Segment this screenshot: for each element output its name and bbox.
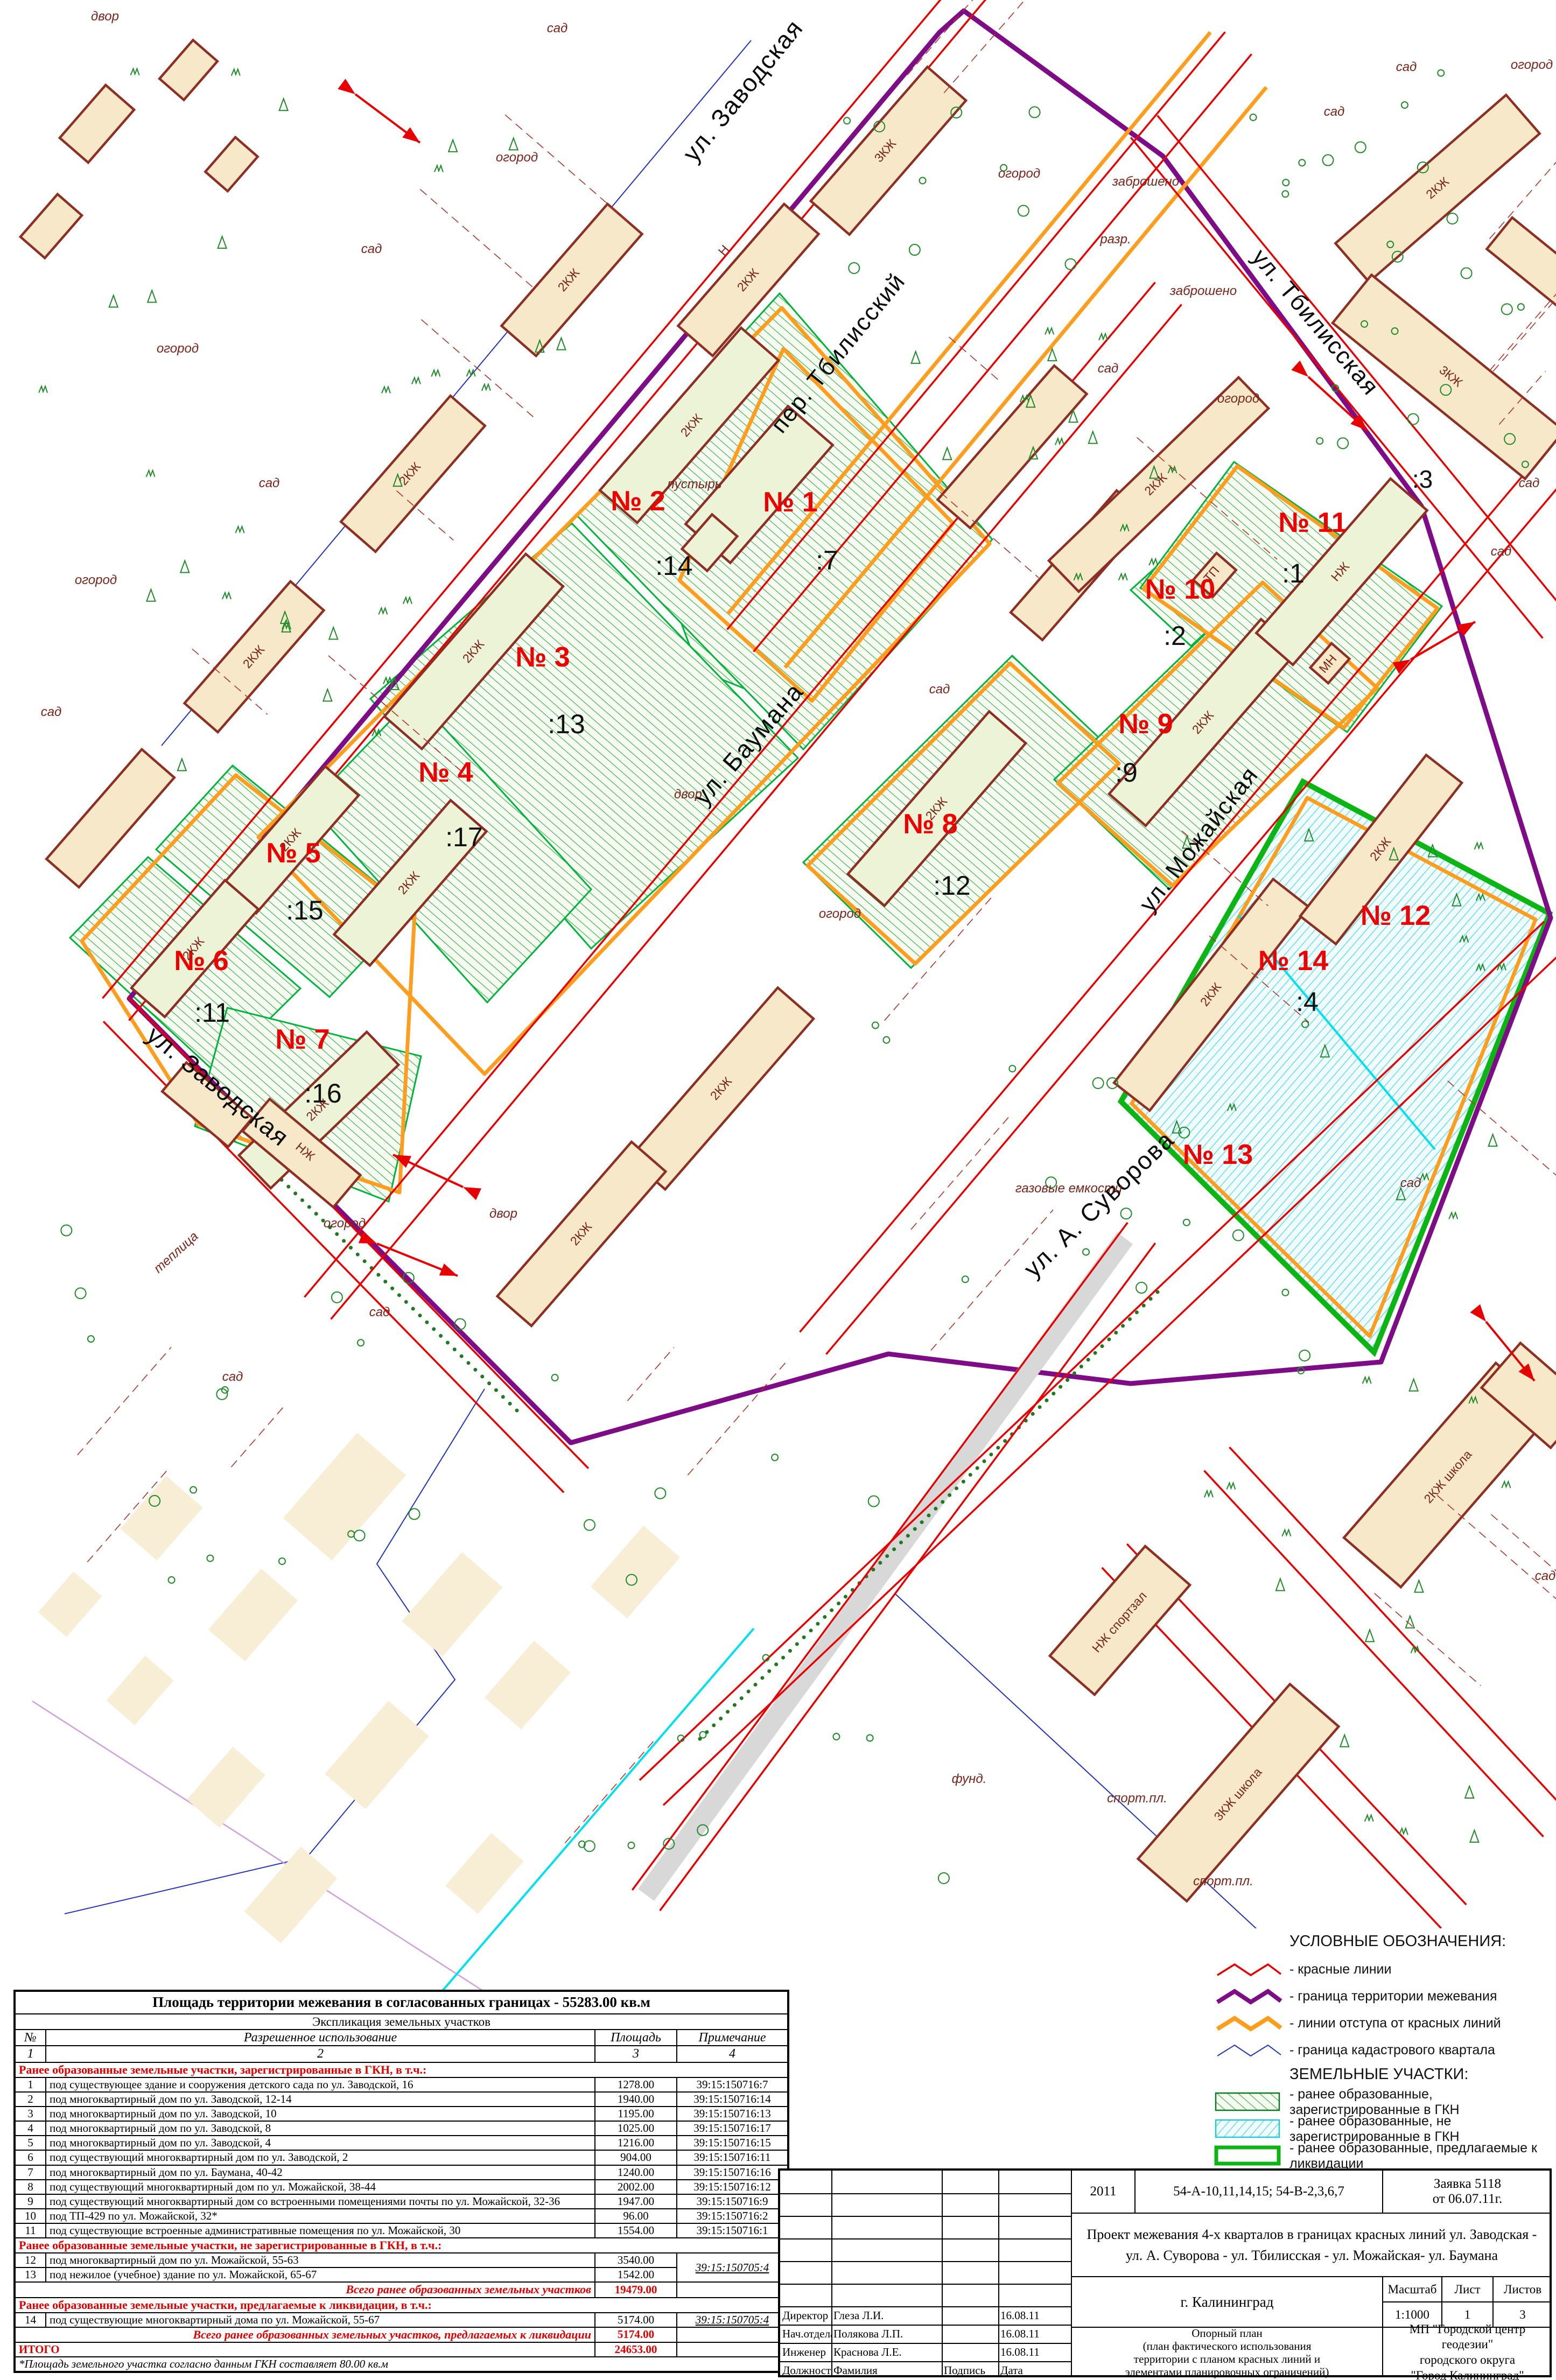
row-area: 1542.00 <box>595 2267 677 2282</box>
tree-symbol <box>909 244 920 255</box>
stamp-sheet-label: Лист <box>1441 2276 1492 2301</box>
parcel-cadastral-number: :12 <box>933 870 971 901</box>
stamp-year: 2011 <box>1071 2171 1134 2213</box>
area-label: сад <box>1098 361 1119 376</box>
table-row: 12под многоквартирный дом по ул. Можайск… <box>15 2253 788 2267</box>
tree-symbol <box>584 1520 595 1530</box>
roadway-band <box>638 1232 1133 1901</box>
explication-table: Площадь территории межевания в согласова… <box>13 1990 789 2373</box>
tree-symbol <box>1322 155 1333 166</box>
tree-symbol <box>584 1841 595 1851</box>
building-label: Н <box>716 242 732 258</box>
row-area: 1025.00 <box>595 2121 677 2136</box>
bush-symbol <box>1401 102 1408 108</box>
legend-line-symbol <box>1209 1986 1289 2006</box>
table-row: 3под многоквартирный дом по ул. Заводско… <box>15 2107 788 2121</box>
conifer-symbol <box>329 627 338 639</box>
table-footnote: *Площадь земельного участка согласно дан… <box>15 2357 788 2372</box>
bush-symbol <box>1299 159 1305 166</box>
conifer-symbol <box>1089 432 1097 444</box>
row-number: 11 <box>15 2223 46 2238</box>
row-note: 39:15:150716:7 <box>677 2077 788 2092</box>
table-row: Ранее образованные земельные участки, не… <box>15 2238 788 2253</box>
row-usage: под существующий многоквартирный дом со … <box>46 2194 595 2209</box>
row-number: 5 <box>15 2136 46 2150</box>
row-note: 39:15:150716:9 <box>677 2194 788 2209</box>
row-usage: под ТП-429 по ул. Можайской, 32* <box>46 2209 595 2223</box>
grand-total-area: 24653.00 <box>595 2342 677 2357</box>
cadastral-plan-sheet: № 1:7№ 2:14№ 3:13№ 4:17№ 5:15№ 6:11№ 7:1… <box>0 0 1556 2380</box>
staff-cell: 16.08.11 <box>998 2326 1071 2343</box>
area-label: сад <box>1535 1569 1556 1583</box>
row-usage: под многоквартирный дом по ул. Заводской… <box>46 2107 595 2121</box>
parcel-cadastral-number: :2 <box>1164 621 1186 651</box>
row-usage: под существующий многоквартирный дом по … <box>46 2180 595 2194</box>
row-area: 1195.00 <box>595 2107 677 2121</box>
cadastral-quarter-number: :3 <box>1412 465 1433 493</box>
row-number: 7 <box>15 2165 46 2180</box>
bush-symbol <box>1438 70 1444 76</box>
bush-symbol <box>920 177 926 184</box>
tree-symbol <box>61 1225 72 1236</box>
parcel-cadastral-number: :1 <box>1282 558 1305 588</box>
tree-symbol <box>1447 213 1458 224</box>
bush-symbol <box>628 1842 635 1849</box>
conifer-symbol <box>557 338 565 350</box>
tree-symbol <box>1233 1230 1244 1241</box>
staff-cell: Нач.отдела <box>780 2326 831 2343</box>
conifer-symbol <box>1489 1134 1497 1146</box>
staff-cell: Краснова Л.Е. <box>831 2344 942 2361</box>
empty-cell <box>677 2342 788 2357</box>
fence-line <box>565 1742 653 1843</box>
table-col-header: Примечание <box>677 2030 788 2046</box>
table-row: ИТОГО24653.00 <box>15 2342 788 2357</box>
area-label: теплица <box>151 1229 201 1276</box>
legend-item: - граница кадастрового квартала <box>1209 2037 1556 2063</box>
parcel-cadastral-number: :13 <box>548 709 585 739</box>
staff-cell: Дата <box>998 2362 1071 2379</box>
area-label: пустырь <box>668 477 722 492</box>
building-faded <box>325 1701 429 1809</box>
row-note: 39:15:150716:13 <box>677 2107 788 2121</box>
staff-row: ИнженерКраснова Л.Е.16.08.11 <box>780 2343 1071 2361</box>
conifer-symbol <box>218 236 227 248</box>
area-label: двор <box>91 9 119 24</box>
grass-symbol <box>232 69 240 75</box>
legend-item: - линии отступа от красных линий <box>1209 2010 1556 2037</box>
parcel-number: № 1 <box>763 487 817 518</box>
parcel-number: № 3 <box>515 642 570 673</box>
table-row: 6под существующий многоквартирный дом по… <box>15 2150 788 2165</box>
stamp-city: г. Калининград <box>1071 2276 1382 2327</box>
tree-symbol <box>1502 304 1512 314</box>
legend-item: - граница территории межевания <box>1209 1983 1556 2010</box>
row-number: 10 <box>15 2209 46 2223</box>
area-label: огород <box>496 150 538 165</box>
area-label: огород <box>1511 58 1553 72</box>
staff-cell: 16.08.11 <box>998 2307 1071 2325</box>
bush-symbol <box>1250 114 1257 121</box>
parcel-cadastral-number: :15 <box>286 895 324 925</box>
table-row: 1под существующее здание и сооружения де… <box>15 2077 788 2092</box>
area-label: заброшено <box>1112 174 1179 189</box>
grass-symbol <box>146 471 155 477</box>
conifer-symbol <box>323 689 332 701</box>
legend-item: - ранее образованные, зарегистрированные… <box>1209 2089 1556 2116</box>
bush-symbol <box>1183 1219 1190 1226</box>
tree-symbol <box>1018 206 1029 216</box>
grass-symbol <box>1502 1482 1510 1488</box>
tree-symbol <box>1408 413 1419 424</box>
bush-symbol <box>772 1454 778 1461</box>
table-row: 5под многоквартирный дом по ул. Заводско… <box>15 2136 788 2150</box>
fence-line <box>232 1406 285 1467</box>
parcel-number: № 13 <box>1183 1139 1253 1170</box>
bush-symbol <box>844 117 850 124</box>
area-label: огород <box>157 341 199 356</box>
building <box>1487 217 1556 310</box>
building-faded <box>485 1641 571 1730</box>
area-label: сад <box>41 705 62 719</box>
stamp-project-title: Проект межевания 4-х кварталов в граница… <box>1071 2213 1552 2276</box>
row-area: 5174.00 <box>595 2313 677 2327</box>
grand-total-label: ИТОГО <box>15 2342 595 2357</box>
bush-symbol <box>700 1732 706 1738</box>
stamp-codes: 54-А-10,11,14,15; 54-В-2,3,6,7 <box>1134 2171 1382 2213</box>
staff-row: ДолжностьФамилияПодписьДата <box>780 2361 1071 2379</box>
table-col-number: 4 <box>677 2046 788 2062</box>
legend-item-label: - ранее образованные, предлагаемые к лик… <box>1289 2140 1556 2172</box>
bush-symbol <box>1316 438 1323 444</box>
tree-symbol <box>1029 107 1040 117</box>
table-col-header: Разрешенное использование <box>46 2030 595 2046</box>
staff-cell: Полякова Л.П. <box>831 2326 942 2343</box>
row-area: 96.00 <box>595 2209 677 2223</box>
row-usage: под многоквартирный дом по ул. Заводской… <box>46 2136 595 2150</box>
parcel-number: № 12 <box>1361 900 1431 931</box>
bush-symbol <box>962 1276 969 1282</box>
fence-line <box>907 0 1006 75</box>
fence-line <box>505 115 630 223</box>
grass-symbol <box>235 526 244 533</box>
row-usage: под многоквартирный дом по ул. Заводской… <box>46 2092 595 2107</box>
tree-symbol <box>1461 268 1472 279</box>
row-usage: под многоквартирный дом по ул. Можайской… <box>46 2253 595 2267</box>
conifer-symbol <box>943 448 951 460</box>
tree-symbol <box>655 1488 665 1499</box>
staff-cell: Подпись <box>942 2362 998 2379</box>
area-label: газовые емкости <box>1015 1181 1122 1196</box>
grass-symbol <box>467 370 475 376</box>
bush-symbol <box>1518 304 1524 310</box>
row-number: 2 <box>15 2092 46 2107</box>
fence-line <box>949 337 998 380</box>
area-label: огород <box>998 166 1040 181</box>
site-plan-map: № 1:7№ 2:14№ 3:13№ 4:17№ 5:15№ 6:11№ 7:1… <box>0 0 1556 1992</box>
table-row: 14под существующие многоквартирный дома … <box>15 2313 788 2327</box>
grass-symbol <box>39 387 47 393</box>
conifer-symbol <box>1410 1379 1418 1391</box>
legend-title: УСЛОВНЫЕ ОБОЗНАЧЕНИЯ: <box>1289 1933 1556 1950</box>
row-note: 39:15:150716:12 <box>677 2180 788 2194</box>
row-area: 1240.00 <box>595 2165 677 2180</box>
table-row: 8под существующий многоквартирный дом по… <box>15 2180 788 2194</box>
legend-patch-symbol <box>1209 2118 1289 2140</box>
area-label: сад <box>547 21 568 36</box>
area-label: огород <box>819 907 861 921</box>
row-note: 39:15:150716:14 <box>677 2092 788 2107</box>
row-note: 39:15:150705:4 <box>677 2313 788 2327</box>
empty-cell <box>677 2282 788 2297</box>
tree-symbol <box>455 1319 466 1330</box>
bush-symbol <box>1083 1249 1089 1255</box>
total-label: Всего ранее образованных земельных участ… <box>15 2282 595 2297</box>
bush-symbol <box>88 1336 94 1342</box>
conifer-symbol <box>1465 1786 1474 1798</box>
tree-symbol <box>1121 1208 1132 1219</box>
area-label: сад <box>929 682 950 697</box>
building <box>938 366 1087 528</box>
table-col-number: 3 <box>595 2046 677 2062</box>
legend-line-symbol <box>1209 1959 1289 1979</box>
staff-row: ДиректорГлеза Л.И.16.08.11 <box>780 2306 1071 2325</box>
conifer-symbol <box>178 759 186 770</box>
bush-symbol <box>867 1735 873 1741</box>
table-subtitle: Экспликация земельных участков <box>15 2014 788 2030</box>
grass-symbol <box>222 593 231 599</box>
staff-cell <box>942 2307 998 2325</box>
row-number: 14 <box>15 2313 46 2327</box>
parcel-number: № 2 <box>611 486 665 517</box>
stamp-request: Заявка 5118 от 06.07.11г. <box>1382 2171 1552 2213</box>
area-label: сад <box>222 1370 243 1384</box>
conifer-symbol <box>448 140 457 152</box>
red-line-arrow <box>355 94 420 143</box>
staff-cell <box>942 2326 998 2343</box>
staff-cell <box>942 2344 998 2361</box>
row-note: 39:15:150716:2 <box>677 2209 788 2223</box>
grass-symbol <box>431 370 440 376</box>
legend-item-label: - красные линии <box>1289 1962 1391 1977</box>
legend-line-symbol <box>1209 2040 1289 2060</box>
row-area: 1940.00 <box>595 2092 677 2107</box>
parcel-number: № 9 <box>1118 708 1173 740</box>
table-row: 2под многоквартирный дом по ул. Заводско… <box>15 2092 788 2107</box>
conifer-symbol <box>279 99 288 110</box>
table-title: Площадь территории межевания в согласова… <box>15 1991 788 2014</box>
bush-symbol <box>1282 1289 1288 1296</box>
legend-item-label: - граница кадастрового квартала <box>1289 2042 1495 2058</box>
building <box>205 137 257 191</box>
bush-symbol <box>1282 191 1288 197</box>
row-usage: под существующее здание и сооружения дет… <box>46 2077 595 2092</box>
stamp-plan-name: Опорный план (план фактического использо… <box>1071 2327 1382 2377</box>
area-label: двор <box>489 1206 517 1221</box>
building-faded <box>591 1526 680 1618</box>
staff-cell: Фамилия <box>831 2362 942 2379</box>
grass-symbol <box>1363 1377 1371 1384</box>
area-label: сад <box>1400 1176 1421 1190</box>
row-number: 4 <box>15 2121 46 2136</box>
row-note: 39:15:150716:17 <box>677 2121 788 2136</box>
row-number: 9 <box>15 2194 46 2209</box>
row-area: 1554.00 <box>595 2223 677 2238</box>
building-faded <box>402 1552 502 1656</box>
area-label: спорт.пл. <box>1107 1791 1167 1806</box>
staff-row: Нач.отделаПолякова Л.П.16.08.11 <box>780 2325 1071 2343</box>
legend: УСЛОВНЫЕ ОБОЗНАЧЕНИЯ: - красные линии- г… <box>1209 1928 1556 2174</box>
bush-symbol <box>190 1487 197 1493</box>
bush-symbol <box>872 1022 879 1029</box>
tree-symbol <box>938 1873 949 1884</box>
grass-symbol <box>482 384 490 391</box>
row-number: 12 <box>15 2253 46 2267</box>
parcel-number: № 7 <box>275 1024 330 1055</box>
legend-patch-symbol <box>1209 2091 1289 2113</box>
legend-patch-symbol <box>1209 2145 1289 2167</box>
table-row: 4под многоквартирный дом по ул. Заводско… <box>15 2121 788 2136</box>
area-label: сад <box>361 242 382 256</box>
legend-item: - ранее образованные, не зарегистрирован… <box>1209 2116 1556 2143</box>
area-label: огород <box>75 573 117 587</box>
fence-line <box>911 1114 1011 1230</box>
table-col-number: 2 <box>46 2046 595 2062</box>
grass-symbol <box>1055 439 1064 445</box>
tree-symbol <box>75 1288 86 1298</box>
building-faded <box>244 1847 338 1943</box>
parcel-cadastral-number: :11 <box>194 998 230 1028</box>
tree-symbol <box>354 1530 365 1541</box>
parcel-cadastral-number: :9 <box>1115 757 1138 788</box>
grass-symbol <box>403 598 412 604</box>
conifer-symbol <box>148 290 156 302</box>
row-usage: под существующие встроенные администрати… <box>46 2223 595 2238</box>
table-row: 7под многоквартирный дом по ул. Баумана,… <box>15 2165 788 2180</box>
row-note: 39:15:150716:11 <box>677 2150 788 2165</box>
staff-cell: Инженер <box>780 2344 831 2361</box>
tree-symbol <box>1299 1350 1310 1361</box>
empty-cell <box>677 2327 788 2342</box>
conifer-symbol <box>180 561 189 573</box>
area-label: сад <box>1396 60 1417 74</box>
conifer-symbol <box>1276 1579 1285 1591</box>
total-area: 5174.00 <box>595 2327 677 2342</box>
building-faded <box>208 1569 298 1661</box>
row-note: 39:15:150716:1 <box>677 2223 788 2238</box>
red-line <box>632 1223 1127 1890</box>
section-row: Ранее образованные земельные участки, за… <box>15 2062 788 2077</box>
building-faded <box>187 1747 265 1828</box>
table-row: 10под ТП-429 по ул. Можайской, 32*96.003… <box>15 2209 788 2223</box>
parcel-cadastral-number: :14 <box>655 551 693 581</box>
row-usage: под существующие многоквартирный дома по… <box>46 2313 595 2327</box>
conifer-symbol <box>1414 1581 1423 1592</box>
table-row: 13под нежилое (учебное) здание по ул. Мо… <box>15 2267 788 2282</box>
bush-symbol <box>207 1555 213 1562</box>
tree-symbol <box>849 263 859 273</box>
row-area: 904.00 <box>595 2150 677 2165</box>
tree-symbol <box>1355 142 1366 153</box>
title-block: ДиректорГлеза Л.И.16.08.11Нач.отделаПоля… <box>778 2168 1552 2377</box>
staff-cell: Глеза Л.И. <box>831 2307 942 2325</box>
conifer-symbol <box>1470 1830 1478 1842</box>
grass-symbol <box>382 387 390 393</box>
bush-symbol <box>1009 1065 1015 1072</box>
staff-cell: Должность <box>780 2362 831 2379</box>
building-faded <box>445 1833 524 1914</box>
parcel-number: № 4 <box>418 757 473 788</box>
area-label: спорт.пл. <box>1193 1874 1253 1888</box>
grass-symbol <box>434 166 443 172</box>
conifer-symbol <box>1365 1630 1374 1641</box>
row-area: 1216.00 <box>595 2136 677 2150</box>
row-area: 3540.00 <box>595 2253 677 2267</box>
grass-symbol <box>1045 328 1054 334</box>
area-label: двор <box>674 787 702 802</box>
parcel-number: № 11 <box>1278 507 1347 538</box>
row-area: 2002.00 <box>595 2180 677 2194</box>
area-label: сад <box>1519 476 1540 490</box>
row-usage: под нежилое (учебное) здание по ул. Можа… <box>46 2267 595 2282</box>
stamp-scale-label: Масштаб <box>1382 2276 1441 2301</box>
row-number: 6 <box>15 2150 46 2165</box>
grass-symbol <box>1449 1212 1457 1219</box>
total-area: 19479.00 <box>595 2282 677 2297</box>
area-label: сад <box>1324 104 1345 119</box>
building-faded <box>38 1571 102 1637</box>
row-note: 39:15:150705:4 <box>677 2253 788 2282</box>
row-area: 1947.00 <box>595 2194 677 2209</box>
row-number: 1 <box>15 2077 46 2092</box>
staff-cell: Директор <box>780 2307 831 2325</box>
fence-line <box>688 1359 789 1475</box>
area-label: сад <box>1491 544 1512 559</box>
street-label: ул. Заводская <box>677 14 808 167</box>
parcel-number: № 14 <box>1258 945 1328 977</box>
grass-symbol <box>131 69 139 75</box>
conifer-symbol <box>109 296 118 307</box>
building <box>60 85 134 163</box>
table-row: 9под существующий многоквартирный дом со… <box>15 2194 788 2209</box>
row-usage: под многоквартирный дом по ул. Баумана, … <box>46 2165 595 2180</box>
stamp-organization: МП "Городской центр геодезии" городского… <box>1382 2327 1552 2377</box>
legend-item: - красные линии <box>1209 1956 1556 1983</box>
fence-line <box>78 1347 171 1455</box>
conifer-symbol <box>912 352 920 363</box>
table-col-number: 1 <box>15 2046 46 2062</box>
bush-symbol <box>169 1577 175 1583</box>
row-number: 13 <box>15 2267 46 2282</box>
grass-symbol <box>1282 1530 1291 1536</box>
grass-symbol <box>1119 574 1127 580</box>
table-row: Ранее образованные земельные участки, за… <box>15 2062 788 2077</box>
red-line-arrow <box>393 1155 463 1187</box>
conifer-symbol <box>1340 1735 1349 1747</box>
area-label: сад <box>369 1305 390 1319</box>
tree-symbol <box>1065 259 1076 270</box>
table-col-header: № <box>15 2030 46 2046</box>
tree-symbol <box>1093 1078 1104 1089</box>
conifer-symbol <box>509 138 518 150</box>
section-row: Ранее образованные земельные участки, пр… <box>15 2298 788 2313</box>
table-row: Ранее образованные земельные участки, пр… <box>15 2298 788 2313</box>
legend-item-label: - граница территории межевания <box>1289 1989 1497 2004</box>
area-label: сад <box>259 476 280 490</box>
row-area: 1278.00 <box>595 2077 677 2092</box>
grass-symbol <box>379 608 387 614</box>
section-row: Ранее образованные земельные участки, не… <box>15 2238 788 2253</box>
